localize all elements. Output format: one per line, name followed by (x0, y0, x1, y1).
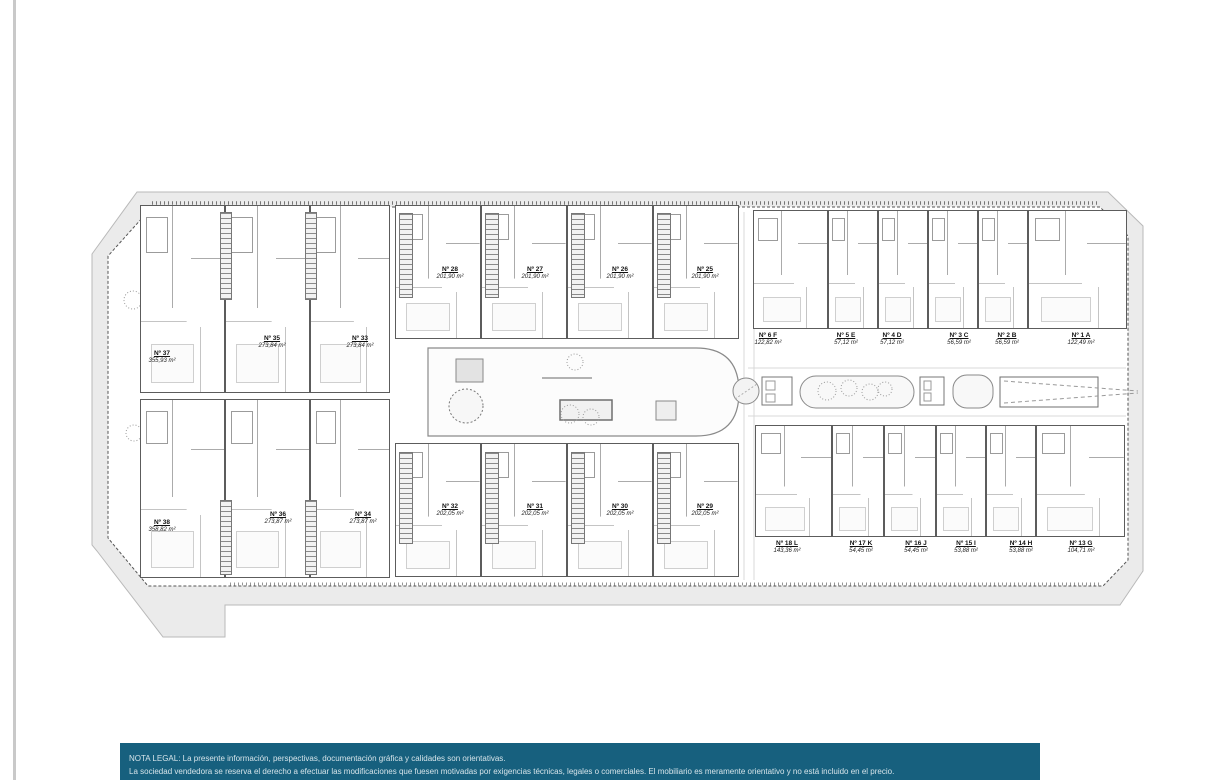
unit-block-36 (225, 399, 310, 578)
unit-area: 202,05 m² (415, 511, 485, 518)
unit-block-3C (928, 210, 978, 329)
unit-number: Nº 4 D (857, 332, 927, 340)
unit-block-2B (978, 210, 1028, 329)
unit-block-16J (884, 425, 936, 537)
unit-label-29: Nº 29202,05 m² (670, 503, 740, 518)
unit-block-35 (225, 205, 310, 393)
site-plan: Nº 37355,93 m² Nº 35273,84 m² Nº 33273,8… (0, 0, 1228, 780)
unit-area: 104,71 m² (1046, 548, 1116, 555)
stairs (399, 213, 413, 298)
legal-notice-band: NOTA LEGAL: La presente información, per… (120, 743, 1040, 780)
unit-block-13G (1036, 425, 1125, 537)
unit-number: Nº 1 A (1046, 332, 1116, 340)
pool (560, 400, 612, 420)
unit-block-1A (1028, 210, 1127, 329)
stairs (220, 212, 232, 300)
unit-area: 273,84 m² (237, 343, 307, 350)
unit-number: Nº 32 (415, 503, 485, 511)
unit-label-25: Nº 25201,90 m² (670, 266, 740, 281)
unit-label-31: Nº 31202,05 m² (500, 503, 570, 518)
unit-area: 358,82 m² (127, 527, 197, 534)
unit-area: 201,90 m² (500, 274, 570, 281)
unit-number: Nº 28 (415, 266, 485, 274)
planter (656, 401, 676, 420)
stairs (485, 452, 499, 544)
legal-text-1: La presente información, perspectivas, d… (183, 754, 506, 763)
unit-area: 122,49 m² (1046, 340, 1116, 347)
unit-number: Nº 29 (670, 503, 740, 511)
stairs (657, 213, 671, 298)
legal-title: NOTA LEGAL: (129, 754, 180, 763)
unit-block-6F (753, 210, 828, 329)
unit-label-30: Nº 30202,05 m² (585, 503, 655, 518)
unit-label-2B: Nº 2 B56,59 m² (972, 332, 1042, 347)
unit-area: 143,36 m² (752, 548, 822, 555)
unit-number: Nº 13 G (1046, 540, 1116, 548)
unit-block-38 (140, 399, 225, 578)
unit-block-4D (878, 210, 928, 329)
unit-label-37: Nº 37355,93 m² (127, 350, 197, 365)
unit-area: 57,12 m² (857, 340, 927, 347)
unit-label-32: Nº 32202,05 m² (415, 503, 485, 518)
unit-number: Nº 6 F (733, 332, 803, 340)
garden-strip (953, 375, 993, 408)
unit-label-18L: Nº 18 L143,36 m² (752, 540, 822, 555)
unit-label-38: Nº 38358,82 m² (127, 519, 197, 534)
stairs (305, 212, 317, 300)
unit-label-36: Nº 36273,87 m² (243, 511, 313, 526)
unit-label-6F: Nº 6 F122,82 m² (733, 332, 803, 347)
unit-number: Nº 36 (243, 511, 313, 519)
stairs (485, 213, 499, 298)
unit-label-13G: Nº 13 G104,71 m² (1046, 540, 1116, 555)
round-plaza (449, 389, 483, 423)
unit-area: 201,90 m² (670, 274, 740, 281)
unit-label-33: Nº 33273,84 m² (325, 335, 395, 350)
legal-line-1: NOTA LEGAL: La presente información, per… (129, 754, 1040, 763)
unit-number: Nº 37 (127, 350, 197, 358)
stairs (571, 452, 585, 544)
unit-label-28: Nº 28201,90 m² (415, 266, 485, 281)
unit-block-5E (828, 210, 878, 329)
unit-area: 273,87 m² (243, 519, 313, 526)
unit-area: 56,59 m² (972, 340, 1042, 347)
unit-block-34 (310, 399, 390, 578)
stairs (220, 500, 232, 575)
stairs (399, 452, 413, 544)
unit-number: Nº 34 (328, 511, 398, 519)
unit-label-26: Nº 26201,90 m² (585, 266, 655, 281)
unit-area: 273,87 m² (328, 519, 398, 526)
legal-line-2: La sociedad vendedora se reserva el dere… (129, 767, 1040, 776)
unit-number: Nº 38 (127, 519, 197, 527)
page: Nº 37355,93 m² Nº 35273,84 m² Nº 33273,8… (0, 0, 1228, 780)
unit-block-33 (310, 205, 390, 393)
unit-area: 202,05 m² (500, 511, 570, 518)
unit-block-17K (832, 425, 884, 537)
unit-area: 201,90 m² (415, 274, 485, 281)
garden-strip (800, 376, 914, 408)
stairs (657, 452, 671, 544)
unit-number: Nº 25 (670, 266, 740, 274)
unit-block-18L (755, 425, 832, 537)
unit-number: Nº 35 (237, 335, 307, 343)
unit-area: 202,05 m² (585, 511, 655, 518)
unit-number: Nº 30 (585, 503, 655, 511)
unit-area: 273,84 m² (325, 343, 395, 350)
unit-label-35: Nº 35273,84 m² (237, 335, 307, 350)
unit-label-4D: Nº 4 D57,12 m² (857, 332, 927, 347)
unit-number: Nº 27 (500, 266, 570, 274)
unit-area: 202,05 m² (670, 511, 740, 518)
stairs (571, 213, 585, 298)
unit-block-14H (986, 425, 1036, 537)
unit-label-27: Nº 27201,90 m² (500, 266, 570, 281)
unit-block-15I (936, 425, 986, 537)
unit-area: 355,93 m² (127, 358, 197, 365)
unit-area: 201,90 m² (585, 274, 655, 281)
planter (456, 359, 483, 382)
unit-label-34: Nº 34273,87 m² (328, 511, 398, 526)
unit-number: Nº 26 (585, 266, 655, 274)
unit-number: Nº 33 (325, 335, 395, 343)
unit-number: Nº 2 B (972, 332, 1042, 340)
unit-number: Nº 31 (500, 503, 570, 511)
unit-number: Nº 18 L (752, 540, 822, 548)
unit-area: 122,82 m² (733, 340, 803, 347)
unit-label-1A: Nº 1 A122,49 m² (1046, 332, 1116, 347)
